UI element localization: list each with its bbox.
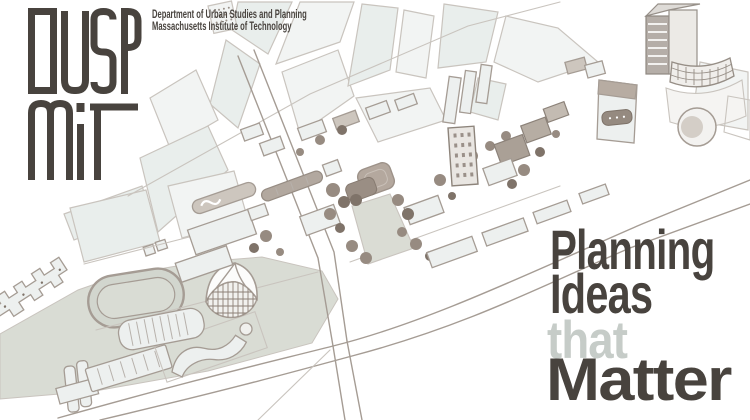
department-name: Department of Urban Studies and Planning… — [152, 10, 307, 33]
mit-wordmark — [32, 103, 139, 180]
dusp-wordmark — [32, 11, 139, 94]
dept-line-1: Department of Urban Studies and Planning — [152, 10, 307, 22]
dusp-banner: Department of Urban Studies and Planning… — [0, 0, 750, 420]
mit-chapel — [240, 323, 252, 335]
dusp-mit-logo — [28, 8, 148, 184]
tagline-line-matter: Matter — [546, 350, 731, 410]
dept-line-2: Massachusetts Institute of Technology — [152, 22, 307, 34]
tall-window-building — [448, 126, 478, 186]
